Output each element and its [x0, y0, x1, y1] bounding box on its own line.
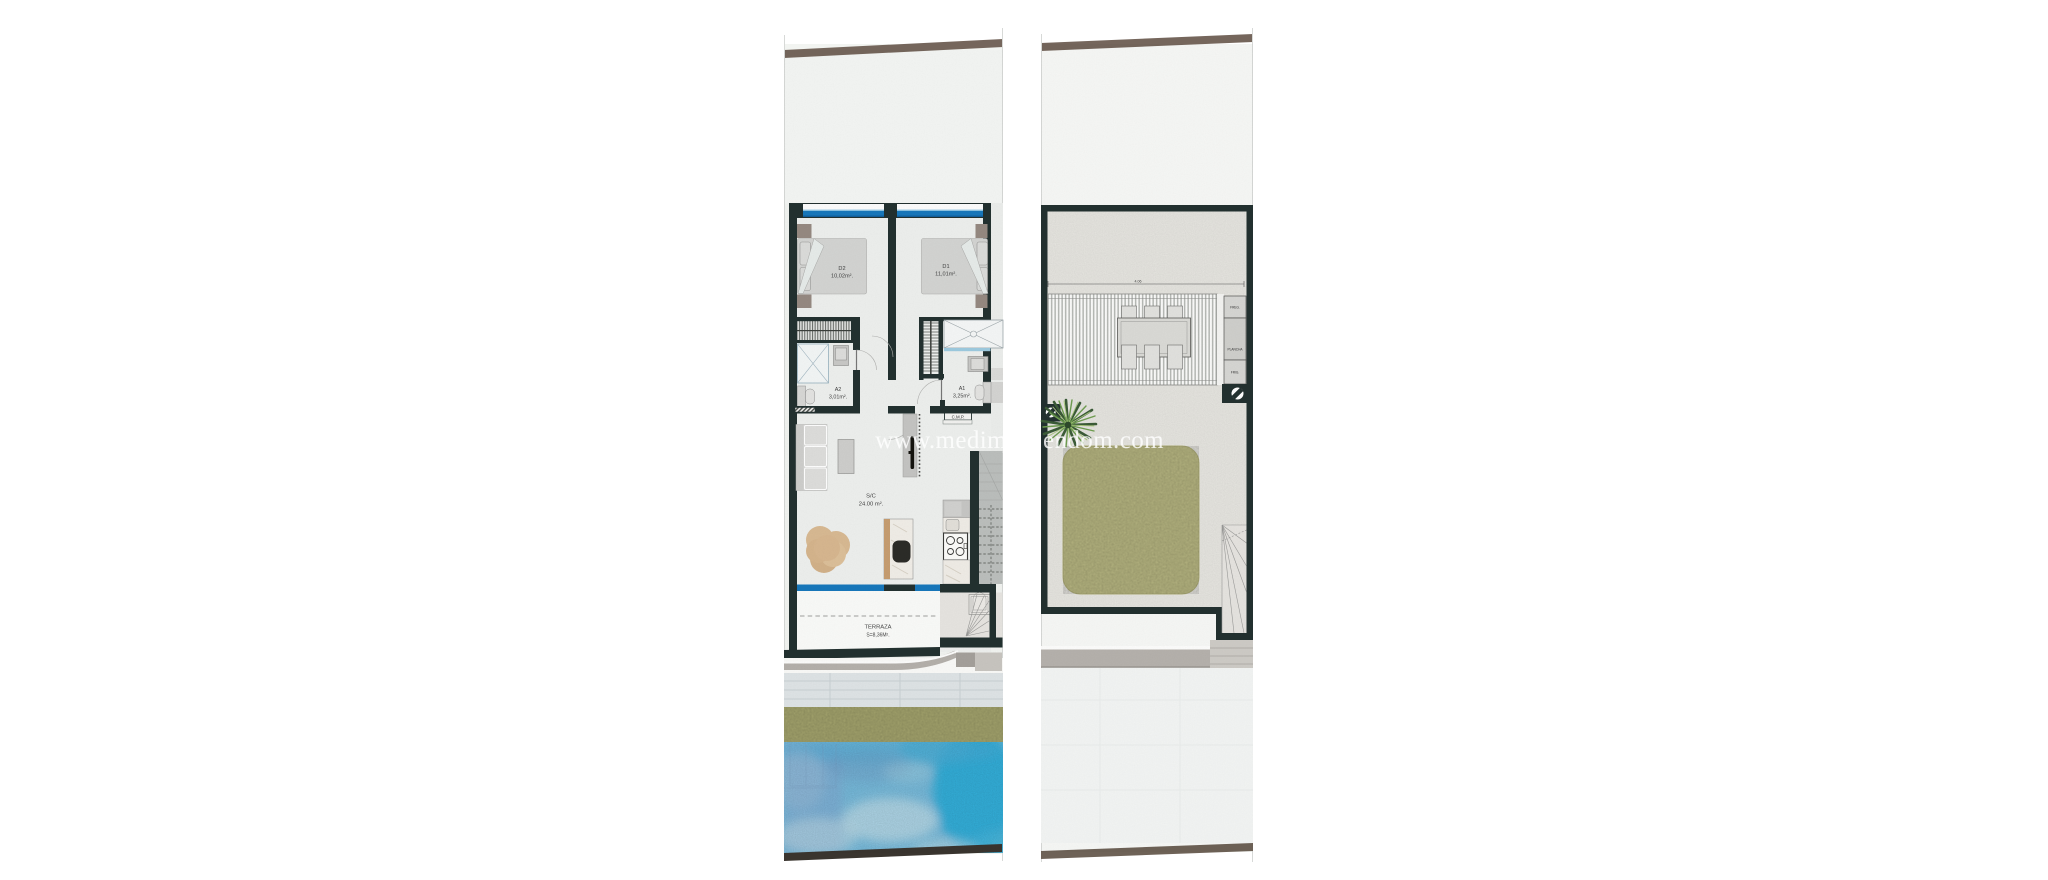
svg-text:endom.com: endom.com	[1043, 427, 1164, 454]
svg-text:www.medim: www.medim	[875, 427, 1007, 454]
